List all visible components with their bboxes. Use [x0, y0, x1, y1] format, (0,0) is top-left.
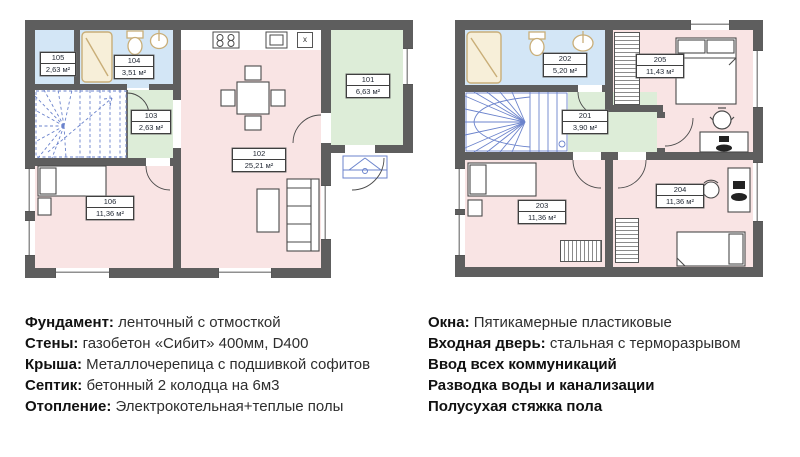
staircase-1-floor [35, 90, 126, 158]
spec-label: Входная дверь: [428, 335, 546, 352]
spec-entry-door: Входная дверь: стальная с терморазрывом [428, 333, 741, 354]
spec-label: Разводка воды и канализации [428, 377, 654, 394]
wardrobe-204 [615, 218, 639, 263]
wall [331, 145, 345, 153]
room-number: 106 [87, 197, 133, 208]
room-area: 11,43 м² [637, 66, 683, 77]
spec-value: газобетон «Сибит» 400мм, D400 [83, 335, 309, 352]
window [321, 185, 331, 240]
spec-septic: Септик: бетонный 2 колодца на 6м3 [25, 375, 370, 396]
spec-value: бетонный 2 колодца на 6м3 [86, 377, 279, 394]
spec-label: Фундамент: [25, 314, 114, 331]
floor-plans-sheet: x 105 2,63 м² 104 3,51 м² 103 2,63 м² 10… [0, 0, 800, 457]
room-number: 205 [637, 55, 683, 66]
window [218, 268, 272, 278]
room-number: 201 [563, 111, 607, 122]
spec-roof: Крыша: Металлочерепица с подшивкой софит… [25, 354, 370, 375]
kitchen-unit-label: x [303, 35, 307, 44]
specs-left: Фундамент: ленточный с отмосткой Стены: … [25, 312, 370, 417]
spec-label: Крыша: [25, 356, 82, 373]
wall [375, 145, 413, 153]
room-number: 102 [233, 149, 285, 160]
room-label-205: 205 11,43 м² [636, 54, 684, 78]
specs-right: Окна: Пятикамерные пластиковые Входная д… [428, 312, 741, 417]
spec-heating: Отопление: Электрокотельная+теплые полы [25, 396, 370, 417]
room-label-104: 104 3,51 м² [114, 55, 154, 79]
wall [605, 160, 613, 267]
wall [657, 112, 665, 118]
room-area: 3,51 м² [115, 67, 153, 78]
room-area: 2,63 м² [41, 64, 75, 75]
spec-value: ленточный с отмосткой [118, 314, 281, 331]
spec-value: Металлочерепица с подшивкой софитов [86, 356, 370, 373]
spec-utilities: Ввод всех коммуникаций [428, 354, 741, 375]
spec-foundation: Фундамент: ленточный с отмосткой [25, 312, 370, 333]
spec-label: Септик: [25, 377, 82, 394]
room-label-203: 203 11,36 м² [518, 200, 566, 224]
room-area: 3,90 м² [563, 122, 607, 133]
room-area: 5,20 м² [544, 65, 586, 76]
spec-label: Ввод всех коммуникаций [428, 356, 617, 373]
spec-value: Пятикамерные пластиковые [474, 314, 672, 331]
room-label-102: 102 25,21 м² [232, 148, 286, 172]
window [690, 20, 730, 30]
wall [170, 158, 181, 166]
door-arc-entrance [352, 158, 384, 190]
porch [343, 156, 387, 178]
wall [35, 84, 127, 90]
room-label-201: 201 3,90 м² [562, 110, 608, 134]
kitchen-unit-box: x [297, 32, 313, 48]
wall [173, 30, 181, 100]
wall [321, 30, 331, 113]
room-label-204: 204 11,36 м² [656, 184, 704, 208]
room-area: 11,36 м² [657, 196, 703, 207]
wall [25, 20, 413, 30]
wall [646, 152, 763, 160]
wall [455, 85, 578, 92]
room-label-103: 103 2,63 м² [131, 110, 171, 134]
room-label-106: 106 11,36 м² [86, 196, 134, 220]
room-number: 104 [115, 56, 153, 67]
room-area: 25,21 м² [233, 160, 285, 171]
wall [605, 105, 663, 112]
wall [601, 152, 618, 160]
room-number: 204 [657, 185, 703, 196]
wall [605, 30, 613, 112]
room-label-202: 202 5,20 м² [543, 53, 587, 77]
window [753, 50, 763, 108]
radiator-203 [560, 240, 602, 262]
room-number: 103 [132, 111, 170, 122]
room-number: 202 [544, 54, 586, 65]
window [455, 168, 465, 210]
room-number: 105 [41, 53, 75, 64]
room-area: 11,36 м² [519, 212, 565, 223]
wall [126, 90, 128, 158]
window [403, 48, 413, 85]
spec-walls: Стены: газобетон «Сибит» 400мм, D400 [25, 333, 370, 354]
wall [455, 267, 763, 277]
wall [25, 158, 146, 166]
spec-screed: Полусухая стяжка пола [428, 396, 741, 417]
staircase-2-floor [465, 92, 568, 152]
wall [173, 148, 181, 268]
spec-label: Полусухая стяжка пола [428, 398, 602, 415]
spec-windows: Окна: Пятикамерные пластиковые [428, 312, 741, 333]
room-area: 11,36 м² [87, 208, 133, 219]
spec-value: Электрокотельная+теплые полы [116, 398, 344, 415]
spec-label: Отопление: [25, 398, 111, 415]
spec-label: Стены: [25, 335, 78, 352]
spec-plumbing: Разводка воды и канализации [428, 375, 741, 396]
wall [455, 152, 573, 160]
room-number: 203 [519, 201, 565, 212]
room-area: 2,63 м² [132, 122, 170, 133]
room-number: 101 [347, 75, 389, 86]
spec-label: Окна: [428, 314, 470, 331]
window [25, 220, 35, 256]
room-area: 6,63 м² [347, 86, 389, 97]
spec-value: стальная с терморазрывом [550, 335, 741, 352]
room-label-105: 105 2,63 м² [40, 52, 76, 76]
window [55, 268, 110, 278]
window [753, 162, 763, 222]
window [25, 168, 35, 212]
room-label-101: 101 6,63 м² [346, 74, 390, 98]
window [455, 214, 465, 256]
